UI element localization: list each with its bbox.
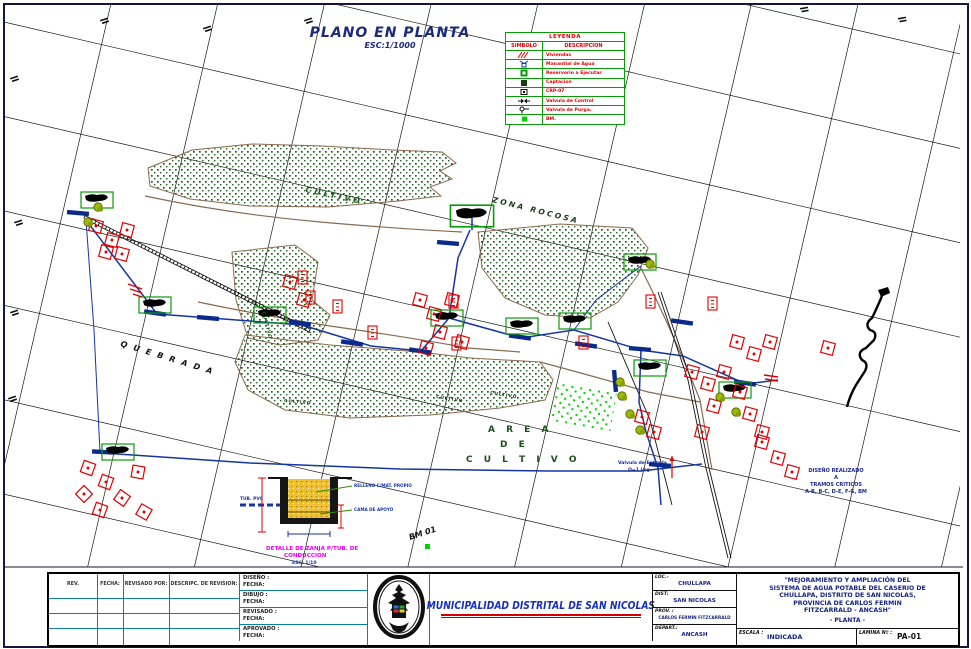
project-title-line: CHULLAPA, DISTRITO DE SAN NICOLAS, [737,592,958,600]
loc-row-departamento: DEPART.: ANCASH [652,625,736,641]
valve-note-2: Q=1 l/sg [628,467,650,473]
design-note: DISEÑO REALIZADO A TRAMOS CRITICOS A-B, … [805,467,867,495]
trench-detail: TUB. PVC RELLENO C/MAT. PROPIO CAMA DE A… [240,478,412,566]
label-quebrada: QUEBRADA [119,339,219,377]
project-title-line: "MEJORAMIENTO Y AMPLIACIÓN DEL [737,577,958,585]
underline-red [441,614,641,616]
sign-row-revisado: REVISADO : FECHA: [239,608,367,625]
legend-title: LEYENDA [506,33,624,42]
drawing-title: PLANO EN PLANTA [300,25,480,41]
crp-icon [517,88,531,96]
label-area-1: A R E A [488,425,552,435]
reservorio-icon [517,69,531,77]
valvula-purga-icon [517,106,531,114]
bm01-marker [425,544,430,549]
legend-row: Valvula de Purga. [506,106,624,115]
bm-icon [517,115,531,123]
legend-col-desc: DESCRIPCION [543,42,624,50]
label-area-3: C U L T I V O [466,455,581,465]
drawing-scale: ESC:1/1000 [300,41,480,50]
design-note-3: TRAMOS CRITICOS [810,482,862,488]
municipality-logo [367,574,429,645]
project-title-line: SISTEMA DE AGUA POTABLE DEL CASERIO DE [737,585,958,593]
revision-table: REV. FECHA: REVISADO POR: DESCRIPC. DE R… [49,574,239,645]
detail-leader-label-1: RELLENO C/MAT. PROPIO [354,483,412,488]
valvula-control-icon [517,97,531,105]
title-block: REV. FECHA: REVISADO POR: DESCRIPC. DE R… [47,572,960,647]
legend-row: Manantial de Agua [506,60,624,69]
entity-name: MUNICIPALIDAD DISTRITAL DE SAN NICOLAS [427,601,655,612]
project-title-line: FITZCARRALD - ANCASH" [737,607,958,615]
label-area-2: D E [500,440,529,450]
design-note-4: A-B, B-C, D-E, F-G, BM [805,489,867,495]
project-title: "MEJORAMIENTO Y AMPLIACIÓN DEL SISTEMA D… [736,574,958,628]
legend-row: Captacion [506,79,624,88]
legend-row: Viviendas [506,51,624,60]
project-subtitle: - PLANTA - [737,617,958,625]
rev-col-header: REV. [49,582,97,587]
lamina-cell: LAMINA Nº : PA-01 [856,628,958,645]
loc-row-local: LOC.- CHULLAPA [652,574,736,591]
detail-caption-1: DETALLE DE ZANJA P/TUB. DE [266,546,358,552]
fecha-col-header: FECHA: [97,582,123,587]
loc-row-distrito: DIST: SAN NICOLAS [652,591,736,608]
legend-col-symbol: SIMBOLO [506,42,543,50]
sign-row-diseno: DISEÑO : FECHA: [239,574,367,591]
escala-cell: ESCALA : INDICADA [736,628,856,645]
stream-symbol-head [878,287,890,297]
sign-row-dibujo: DIBUJO : FECHA: [239,591,367,608]
entity-cell: MUNICIPALIDAD DISTRITAL DE SAN NICOLAS [429,574,652,645]
site-plan-canvas: TUB. PVC RELLENO C/MAT. PROPIO CAMA DE A… [0,0,971,649]
design-note-1: DISEÑO REALIZADO [808,467,863,474]
valve-note-1: Valvula de Entrada [618,460,667,466]
revisado-col-header: REVISADO POR: [123,582,169,587]
project-title-line: PROVINCIA DE CARLOS FERMIN [737,600,958,608]
cultivation-areas [148,144,648,431]
roads [608,292,731,558]
loc-row-provincia: PROV. : CARLOS FERMIN FITZCARRALD [652,608,736,625]
legend-row: BM. [506,115,624,123]
label-bm01: BM 01 [408,525,437,542]
captacion-icon [517,79,531,87]
design-note-2: A [834,475,838,481]
detail-caption-scale: ESC: 1/10 [292,560,317,566]
sign-row-aprovado: APROVADO : FECHA: [239,625,367,641]
coordinate-grid [0,0,971,649]
descripcion-col-header: DESCRIPC. DE REVISION: [169,582,239,587]
viviendas-icon [517,51,531,59]
detail-pipe-label: TUB. PVC [240,496,263,502]
legend: LEYENDA SIMBOLO DESCRIPCION Viviendas Ma… [505,32,625,125]
underline-blue [441,617,641,619]
legend-row: CRP-07 [506,88,624,97]
label-zona-rocosa: ZONA ROCOSA [491,195,581,226]
detail-leader-label-2: CAMA DE APOYO [354,507,394,512]
manantial-icon [517,60,531,68]
plan-sheet: TUB. PVC RELLENO C/MAT. PROPIO CAMA DE A… [0,0,971,649]
component-labels [81,192,751,460]
legend-row: Valvula de Control [506,97,624,106]
legend-row: Reservorio a Ejecutar [506,69,624,78]
detail-caption-2: CONDUCCION [284,553,327,559]
